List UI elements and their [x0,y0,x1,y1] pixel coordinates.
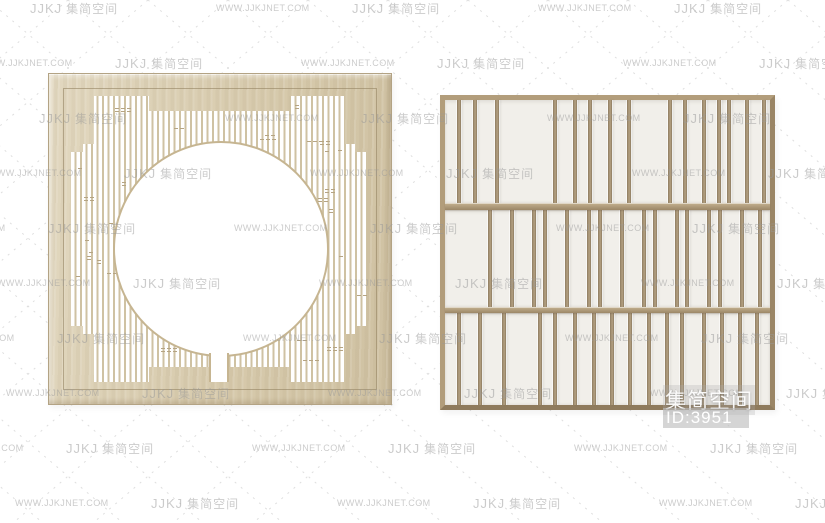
screen-band [445,100,770,203]
bottom-slot-opening [209,353,229,382]
vertical-slat [683,100,687,203]
lattice-tick-mark [320,141,330,142]
lattice-tick-mark [303,360,319,361]
vertical-slat [685,210,689,307]
dash-guide-line [0,0,43,523]
vertical-slat [647,313,651,405]
lattice-tick-mark [87,256,91,257]
vertical-slat [588,100,592,203]
lattice-tick-mark [295,105,299,106]
lattice-tick-mark [295,108,299,109]
vertical-slat [573,100,577,203]
lattice-tick-mark [97,260,101,261]
lattice-tick-mark [122,185,126,186]
lattice-tick-mark [325,192,335,193]
vertical-slat [717,100,721,203]
vertical-slat [573,313,577,405]
vertical-slat [755,313,759,405]
vertical-slat [653,210,657,307]
lattice-tick-mark [115,111,131,112]
vertical-slat [538,313,542,405]
lattice-tick-mark [97,263,101,264]
lattice-tick-mark [84,200,94,201]
product-image-canvas: WWW.JJKJNET.COMJJKJ集简空间WWW.JJKJNET.COMJJ… [0,0,825,523]
lattice-tick-mark [325,189,335,190]
lattice-tick-mark [89,252,93,253]
vertical-slat [642,210,646,307]
vertical-slat [457,100,461,203]
vertical-slat [565,210,569,307]
lattice-tick-mark [338,150,342,151]
vertical-slat [702,100,706,203]
lattice-tick-mark [161,351,177,352]
vertical-slat [727,100,731,203]
lattice-tick-mark [339,256,343,257]
vertical-slat [707,210,711,307]
vertical-slat [553,313,557,405]
lattice-tick-mark [325,151,329,152]
lattice-tick-mark [109,223,113,224]
vertical-slat [675,210,679,307]
vertical-slat [740,210,744,307]
lattice-screen-panel [48,73,392,405]
vertical-slat [510,210,514,307]
vertical-slat [608,100,612,203]
lattice-tick-mark [161,348,177,349]
lattice-tick-mark [320,144,330,145]
lattice-tick-mark [329,212,333,213]
lattice-tick-mark [260,139,276,140]
lattice-tick-mark [84,197,94,198]
slat-screen-panel [440,95,775,410]
vertical-slat [532,210,536,307]
vertical-slat [495,100,499,203]
vertical-slat [610,313,614,405]
vertical-slat [473,100,477,203]
vertical-slat [718,210,722,307]
screen-band [445,210,770,307]
lattice-tick-mark [329,209,333,210]
lattice-tick-mark [85,240,89,241]
lattice-tick-mark [122,182,126,183]
lattice-tick-mark [87,259,91,260]
lattice-tick-mark [78,168,82,169]
lattice-tick-mark [297,340,307,341]
vertical-slat [628,313,632,405]
vertical-slat [553,100,557,203]
vertical-slat [502,313,506,405]
lattice-tick-mark [174,128,184,129]
vertical-slat [543,210,547,307]
lattice-tick-mark [327,347,343,348]
lattice-tick-mark [115,108,131,109]
lattice-tick-mark [265,135,275,136]
band-rail [445,307,770,313]
vertical-slat [592,313,596,405]
lattice-tick-mark [357,295,367,296]
vertical-slat [620,210,624,307]
vertical-slat [598,210,602,307]
vertical-slat [478,313,482,405]
circular-opening [113,141,329,357]
lattice-area [69,91,373,383]
vertical-slat [488,210,492,307]
vertical-slat [627,100,631,203]
vertical-slat [758,210,762,307]
band-rail [445,203,770,210]
vertical-slat [587,210,591,307]
asset-id-badge: ID:3951 [663,408,749,428]
vertical-slat [745,100,749,203]
lattice-tick-mark [76,276,80,277]
dash-guide-line [788,0,825,523]
vertical-slat [762,100,766,203]
vertical-slat [668,100,672,203]
lattice-tick-mark [327,350,343,351]
vertical-slat [457,313,461,405]
